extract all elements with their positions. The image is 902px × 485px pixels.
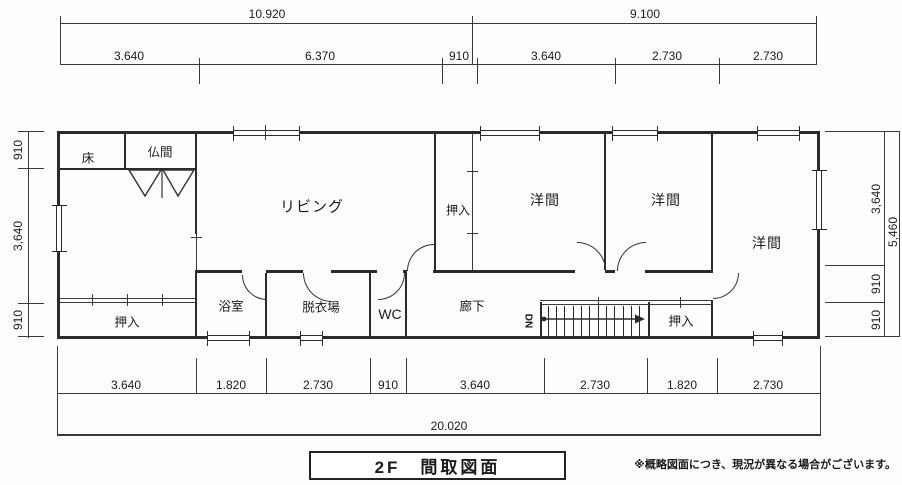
dim-label-bottom: 3.640 xyxy=(460,378,490,392)
wall-wc-hall xyxy=(405,273,407,336)
room-label-youma-3: 洋間 xyxy=(752,233,782,253)
wall-hall-oshiire-right xyxy=(648,302,650,336)
slider-oshiire-strip xyxy=(472,134,473,270)
dim-label-top-total-left: 10.920 xyxy=(249,7,286,21)
dim-tick xyxy=(719,58,720,84)
dim-line-bottom-1 xyxy=(57,393,821,394)
slider-washitsu-living xyxy=(196,234,197,270)
room-label-toko: 床 xyxy=(82,148,95,167)
floor-plan-page: 10.920 9.100 3.640 6.370 910 3.640 2.730… xyxy=(0,0,902,485)
dim-tick xyxy=(18,303,44,304)
slider-stairs-top xyxy=(540,304,712,305)
wall-youma1-youma2 xyxy=(604,134,606,270)
dim-tick xyxy=(820,346,821,436)
room-label-oshiire-center: 押入 xyxy=(446,202,470,219)
dim-tick xyxy=(816,16,817,65)
dim-label-bottom: 910 xyxy=(378,378,398,392)
room-label-hallway: 廊下 xyxy=(459,296,484,315)
door-arc-bathroom xyxy=(242,275,267,300)
window xyxy=(233,130,300,136)
wall-youma3-left-lower xyxy=(711,300,713,336)
room-label-butsuma: 仏間 xyxy=(147,142,172,161)
door-arc-living xyxy=(407,244,434,271)
dim-label-right: 910 xyxy=(869,274,883,294)
dim-label-left: 910 xyxy=(11,140,25,160)
room-label-bathroom: 浴室 xyxy=(218,296,243,315)
dim-tick xyxy=(266,358,267,394)
stairs-dn-label: DN xyxy=(523,314,534,328)
window xyxy=(56,205,62,252)
wall-exterior-bottom xyxy=(57,336,820,339)
window xyxy=(480,130,540,136)
dim-label-right: 3,640 xyxy=(869,184,883,214)
stairs-direction-arrow xyxy=(539,311,647,327)
dim-tick xyxy=(406,358,407,394)
dim-label-bottom: 2.730 xyxy=(303,378,333,392)
wall-toko-butsuma xyxy=(124,134,126,170)
dim-label-top-total-right: 9.100 xyxy=(630,7,660,21)
wall-exterior-right xyxy=(817,131,820,339)
wall-mid xyxy=(605,270,615,273)
dim-label-bottom: 2.730 xyxy=(753,378,783,392)
dim-label-right: 910 xyxy=(869,310,883,330)
dim-tick xyxy=(370,358,371,394)
window xyxy=(757,130,800,136)
door-arc-youma1 xyxy=(577,242,606,271)
window xyxy=(207,335,250,341)
wall-mid xyxy=(266,270,303,273)
room-label-oshiire-right: 押入 xyxy=(668,311,693,330)
door-arc-youma2 xyxy=(617,242,646,271)
window xyxy=(816,170,822,230)
dim-tick xyxy=(544,358,545,394)
wall-youma2-youma3 xyxy=(711,134,713,272)
dim-tick xyxy=(477,58,478,84)
dim-tick xyxy=(825,265,885,266)
dim-label-left: 3,640 xyxy=(11,221,25,251)
dim-label-top-seg: 3.640 xyxy=(114,49,144,63)
slider-tick xyxy=(191,237,202,238)
dim-tick xyxy=(57,346,58,436)
window-tick xyxy=(265,125,266,140)
dim-label-bottom: 2.730 xyxy=(580,378,610,392)
slider-tick xyxy=(92,294,93,306)
room-label-dressing: 脱衣場 xyxy=(302,297,340,316)
dim-label-top-seg: 2.730 xyxy=(753,49,783,63)
slider-tick xyxy=(127,294,128,306)
room-label-youma-1: 洋間 xyxy=(530,190,560,210)
folding-door-butsuma xyxy=(128,169,196,199)
dim-label-bottom: 1.820 xyxy=(667,378,697,392)
room-label-youma-2: 洋間 xyxy=(651,190,681,210)
window xyxy=(612,130,658,136)
dim-label-top-seg: 3.640 xyxy=(531,49,561,63)
dim-tick xyxy=(825,302,885,303)
window xyxy=(300,335,323,341)
dim-line-top-2 xyxy=(60,64,817,65)
slider-tick xyxy=(680,297,681,308)
dim-tick xyxy=(472,16,473,65)
window xyxy=(753,335,783,341)
dim-label-left: 910 xyxy=(11,310,25,330)
dim-tick xyxy=(615,58,616,84)
dim-tick xyxy=(18,336,44,337)
door-arc-youma3 xyxy=(713,273,739,299)
dim-line-top-1 xyxy=(60,23,817,24)
wall-oshiire-strip-left xyxy=(434,134,436,270)
wall-washitsu-right-lower xyxy=(195,270,197,336)
wall-mid xyxy=(196,270,242,273)
dim-line-bottom-total xyxy=(57,434,821,436)
door-arc-wc xyxy=(378,273,405,300)
dim-label-bottom-total: 20.020 xyxy=(431,419,468,433)
dim-tick xyxy=(825,131,900,132)
dim-label-bottom: 1.820 xyxy=(216,378,246,392)
slider-stairs-top xyxy=(540,300,712,301)
room-label-living: リビング xyxy=(280,196,344,217)
dim-label-bottom: 3.640 xyxy=(111,378,141,392)
slider-tick xyxy=(467,171,478,172)
room-label-oshiire-left: 押入 xyxy=(114,312,139,331)
dim-line-left xyxy=(28,131,29,338)
wall-mid xyxy=(645,270,713,273)
dim-line-right-inner xyxy=(884,131,885,337)
dim-label-top-seg: 6.370 xyxy=(305,49,335,63)
dim-tick xyxy=(199,58,200,84)
dim-label-right-total: 5,460 xyxy=(886,217,900,247)
plan-title: 2F 間取図面 xyxy=(375,453,501,478)
plan-title-box: 2F 間取図面 xyxy=(309,451,566,480)
wall-dressing-wc xyxy=(369,273,371,336)
dim-tick xyxy=(442,58,443,84)
wall-exterior-top xyxy=(57,131,820,134)
wall-mid xyxy=(433,270,575,273)
dim-tick xyxy=(18,168,44,169)
dim-label-top-seg: 910 xyxy=(449,49,469,63)
slider-tick xyxy=(162,294,163,306)
dim-tick xyxy=(196,358,197,394)
disclaimer-note: ※概略図面につき、現況が異なる場合がございます。 xyxy=(634,456,896,472)
dim-tick xyxy=(60,16,61,65)
slider-tick xyxy=(467,233,478,234)
dim-label-top-seg: 2.730 xyxy=(652,49,682,63)
dim-tick xyxy=(825,336,900,337)
dim-tick xyxy=(18,131,44,132)
dim-tick xyxy=(717,358,718,394)
room-label-wc: WC xyxy=(378,306,401,322)
dim-tick xyxy=(647,358,648,394)
